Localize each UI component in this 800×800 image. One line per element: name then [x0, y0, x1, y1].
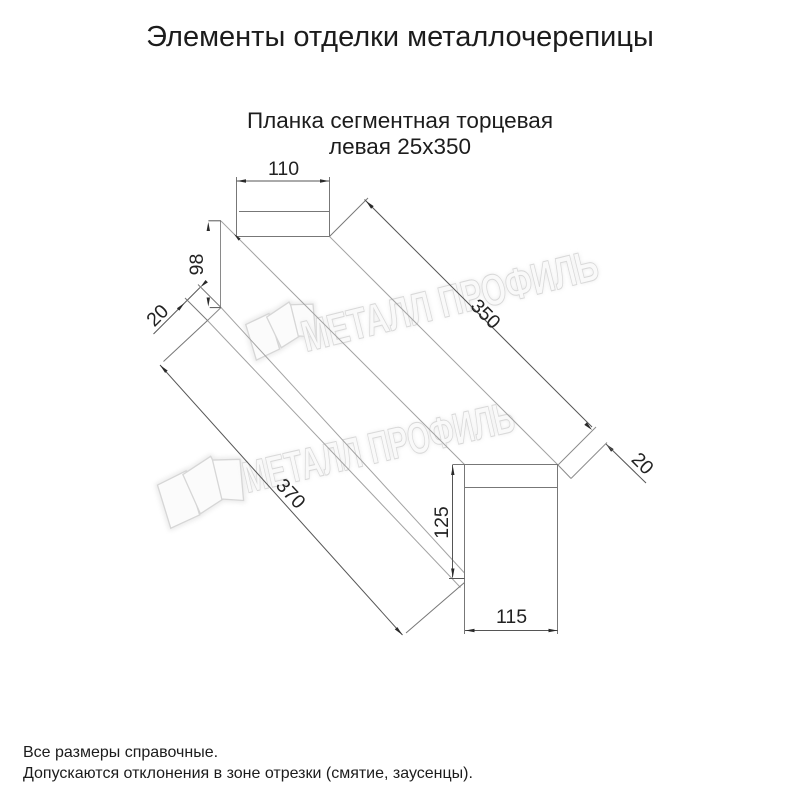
svg-text:115: 115: [496, 606, 527, 628]
svg-text:125: 125: [431, 506, 453, 539]
svg-text:110: 110: [268, 158, 299, 180]
svg-text:98: 98: [186, 254, 208, 276]
svg-text:20: 20: [627, 448, 658, 479]
svg-text:МЕТАЛЛ ПРОФИЛЬ: МЕТАЛЛ ПРОФИЛЬ: [297, 241, 604, 362]
svg-text:20: 20: [142, 300, 173, 331]
